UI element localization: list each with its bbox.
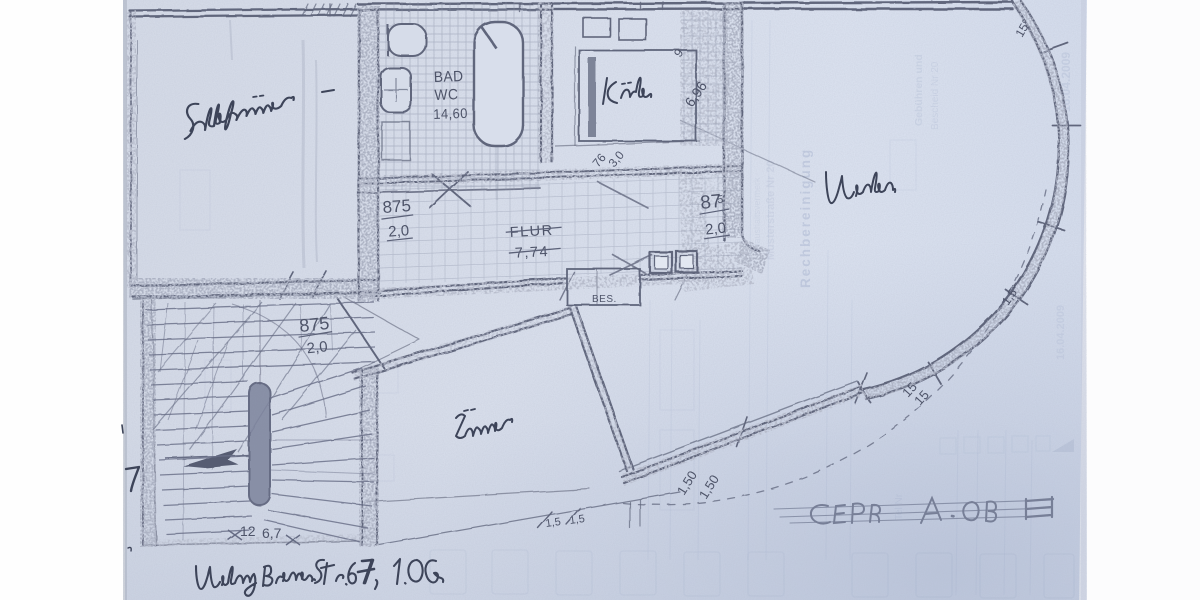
svg-text:16.04.2009: 16.04.2009 (1055, 305, 1067, 360)
svg-text:Bescheid Nr 20: Bescheid Nr 20 (930, 61, 941, 130)
svg-text:Tel Nr: Tel Nr (894, 493, 905, 520)
svg-text:1,5: 1,5 (545, 516, 562, 530)
svg-text:875: 875 (382, 196, 412, 217)
svg-text:WC: WC (434, 87, 458, 104)
svg-text:Haushaltsvermerk: Haushaltsvermerk (752, 177, 762, 250)
svg-text:1,5: 1,5 (569, 513, 586, 527)
svg-text:7,74: 7,74 (514, 244, 549, 262)
svg-text:BAD: BAD (434, 68, 464, 86)
svg-text:5: 5 (717, 194, 724, 207)
svg-text:14,60: 14,60 (433, 105, 468, 122)
svg-text:Gebühren und: Gebühren und (913, 54, 925, 126)
svg-text:6,7: 6,7 (262, 525, 282, 541)
svg-text:2,0: 2,0 (306, 338, 329, 357)
svg-text:Musterstraße Nr 20: Musterstraße Nr 20 (765, 160, 777, 260)
svg-text:12: 12 (240, 523, 256, 539)
svg-text:Rechbereinigung: Rechbereinigung (798, 148, 813, 288)
svg-text:BES.: BES. (592, 294, 617, 305)
svg-text:2,0: 2,0 (388, 222, 410, 240)
